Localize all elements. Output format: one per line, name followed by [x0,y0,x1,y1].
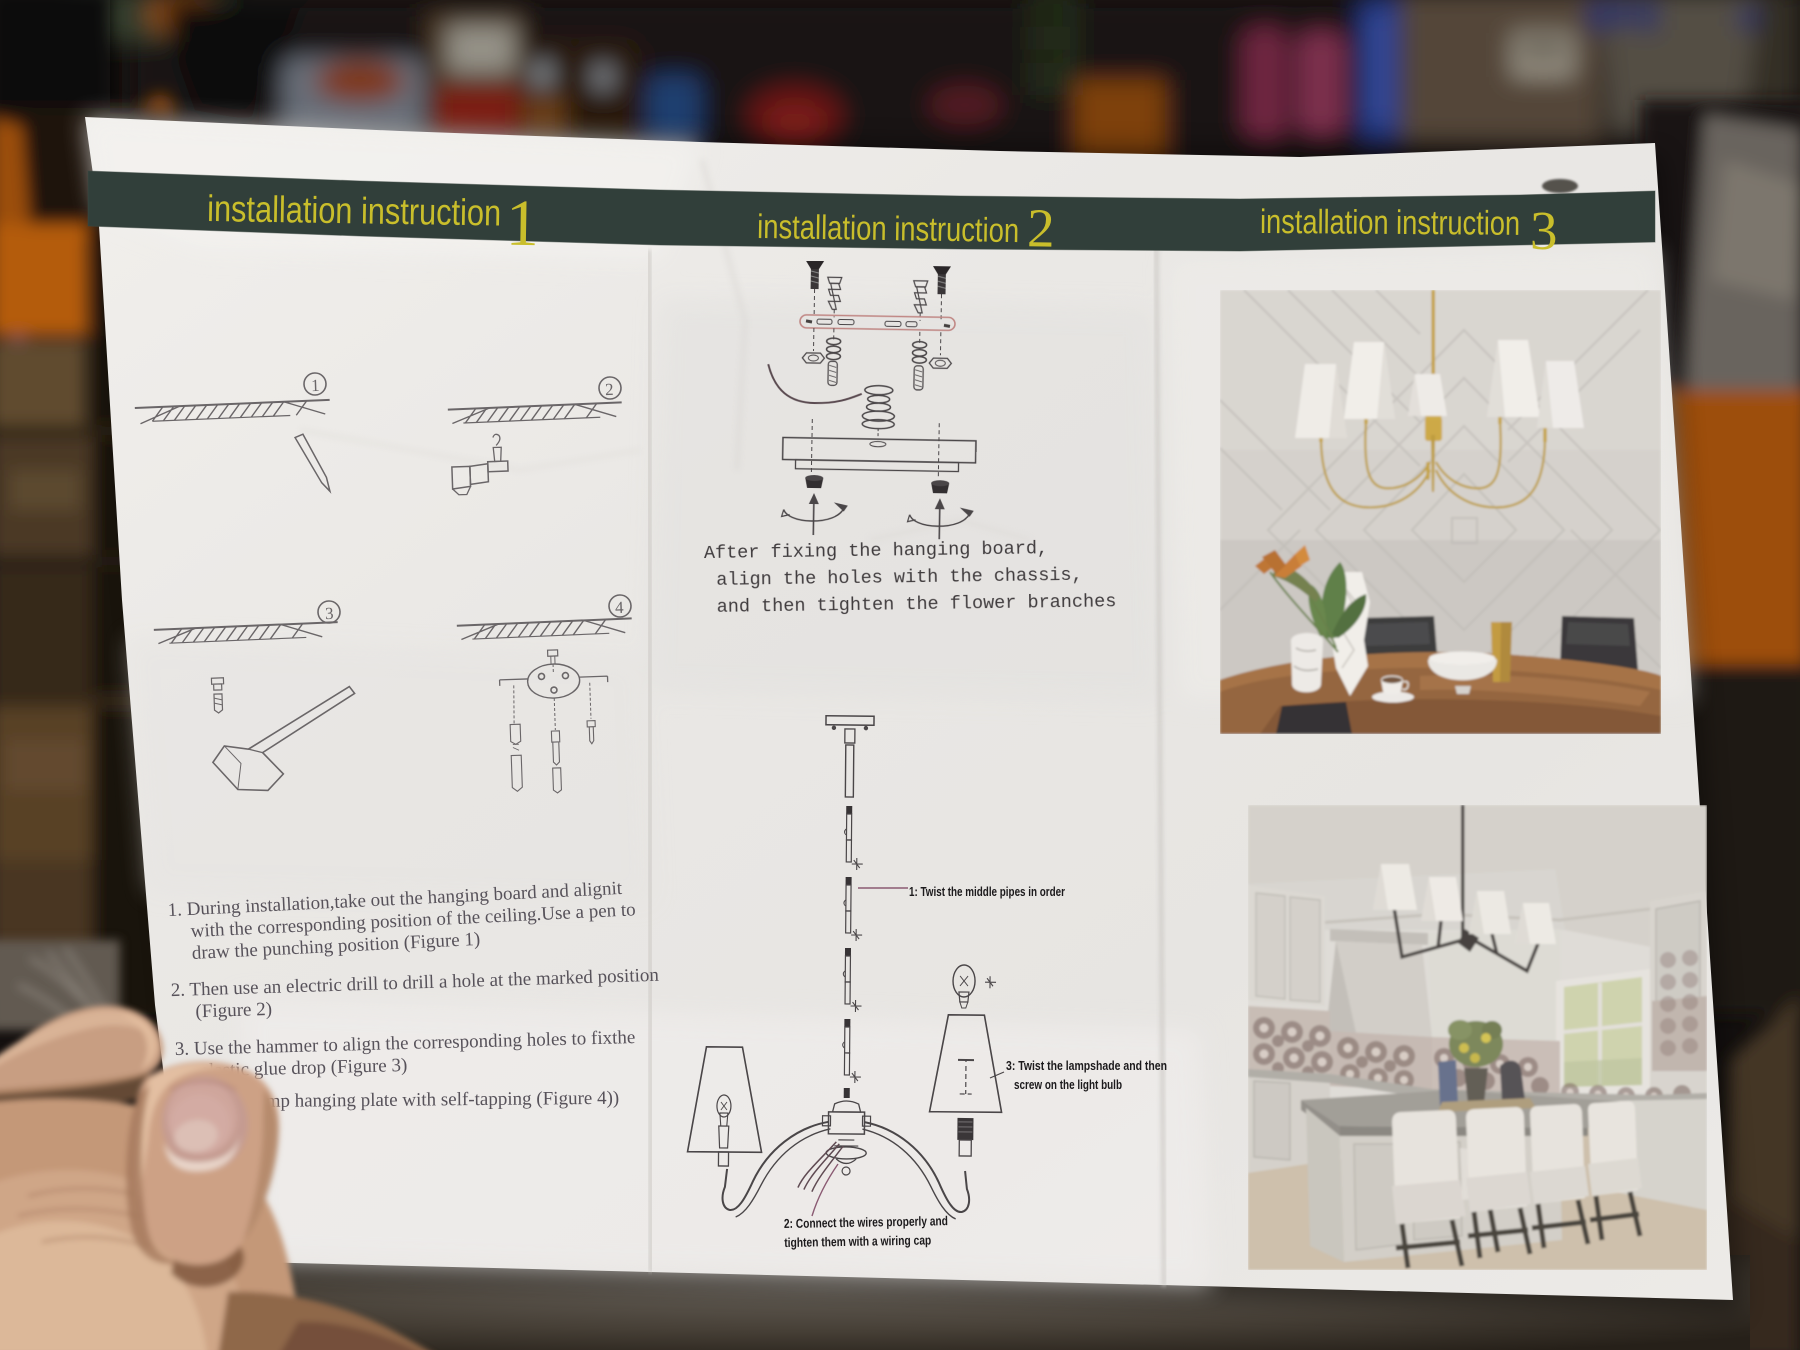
svg-text:2: 2 [1027,197,1055,258]
svg-text:2: 2 [605,380,614,399]
svg-text:3: 3 [325,604,334,623]
svg-text:4: 4 [615,598,625,617]
svg-text:installation instruction: installation instruction [757,208,1020,250]
svg-text:3: 3 [1530,200,1558,261]
svg-text:1: 1 [505,187,539,261]
svg-text:tighten them with a wiring cap: tighten them with a wiring cap [784,1232,931,1250]
svg-text:1: 1 [311,376,320,395]
svg-text:(Figure 2): (Figure 2) [195,999,272,1022]
svg-text:lamp hanging plate with self-t: lamp hanging plate with self-tapping (Fi… [252,1088,619,1112]
svg-text:installation instruction: installation instruction [1260,203,1520,243]
svg-text:2: Connect the wires properly: 2: Connect the wires properly and [784,1213,948,1231]
svg-text:1: Twist the middle pipes in o: 1: Twist the middle pipes in order [909,884,1065,899]
svg-text:installation instruction: installation instruction [207,188,502,234]
svg-text:3: Twist the lampshade and the: 3: Twist the lampshade and then [1006,1058,1167,1073]
svg-text:screw on the light bulb: screw on the light bulb [1014,1077,1122,1092]
